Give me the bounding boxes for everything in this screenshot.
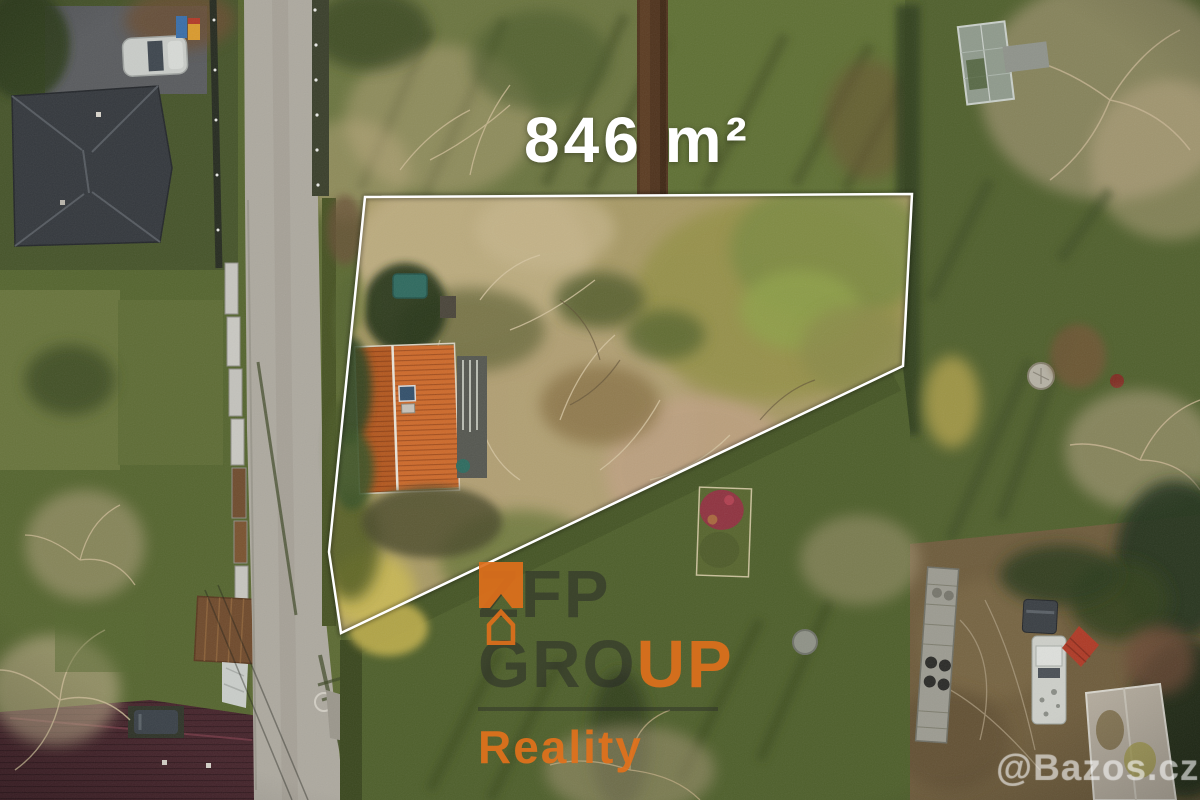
zfp-divider [478,707,718,711]
zfp-house-pin-icon [478,561,524,645]
area-label: 846 m² [524,103,751,177]
bazos-watermark: @Bazos.cz [996,747,1199,789]
zfp-up-text: UP [637,627,734,702]
aerial-photo: 846 m² ZFP GROUP Reality @Bazos.cz [0,0,1200,800]
zfp-group-watermark: ZFP GROUP Reality [478,561,734,770]
zfp-reality-text: Reality [478,724,734,770]
